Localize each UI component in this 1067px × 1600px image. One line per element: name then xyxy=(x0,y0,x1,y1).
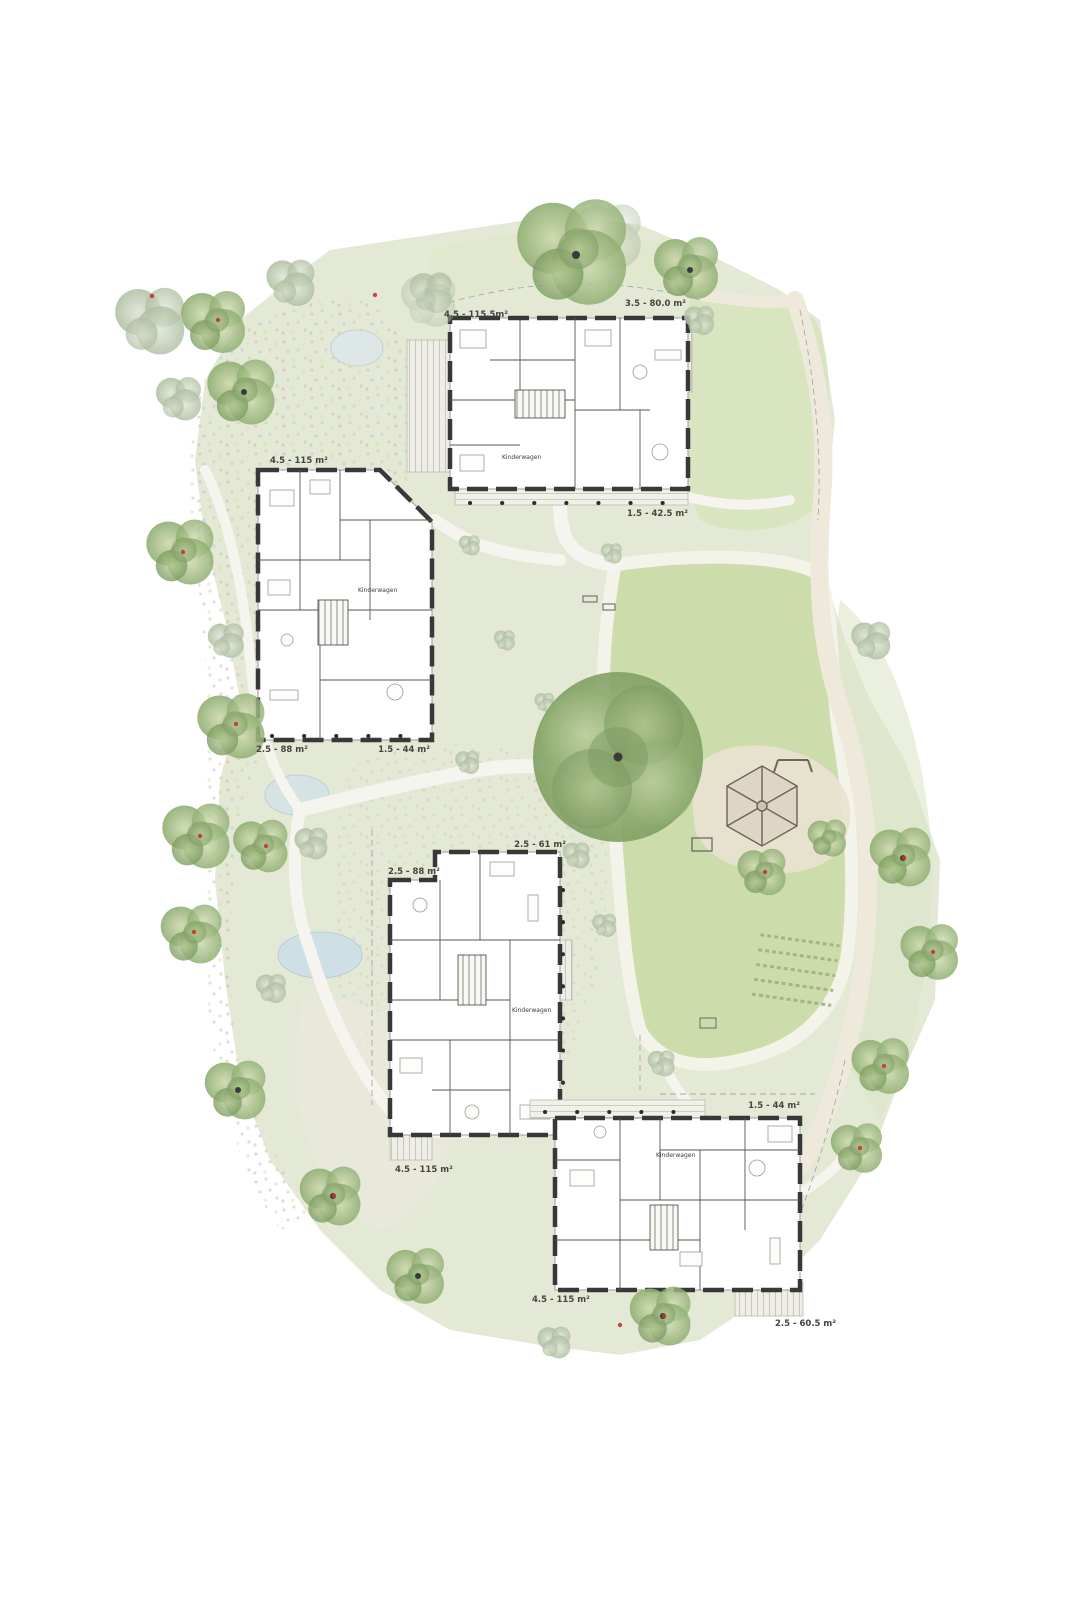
terrace xyxy=(407,340,453,472)
site-plan: 4.5 - 115.5m² 3.5 - 80.0 m² 1.5 - 42.5 m… xyxy=(0,0,1067,1600)
deck xyxy=(530,1100,705,1118)
room-label-center: Kinderwagen xyxy=(512,1007,551,1014)
label-north-top-left: 4.5 - 115.5m² xyxy=(444,310,508,320)
label-west-bottom-right: 1.5 - 44 m² xyxy=(378,745,430,755)
stair xyxy=(458,955,486,1005)
label-north-top-right: 3.5 - 80.0 m² xyxy=(625,299,686,309)
label-southeast-top-right: 1.5 - 44 m² xyxy=(748,1101,800,1111)
deck xyxy=(455,489,688,505)
label-southeast-bottom-right: 2.5 - 60.5 m² xyxy=(775,1319,836,1329)
room-label-southeast: Kinderwagen xyxy=(656,1152,695,1159)
stair xyxy=(515,390,565,418)
label-west-top-left: 4.5 - 115 m² xyxy=(270,456,328,466)
room-label-north: Kinderwagen xyxy=(502,454,541,461)
label-center-top-right: 2.5 - 61 m² xyxy=(514,840,566,850)
building-southeast-floorplan xyxy=(530,1100,803,1316)
building-north-floorplan xyxy=(407,318,692,505)
label-center-top-left: 2.5 - 88 m² xyxy=(388,867,440,877)
building-west-floorplan xyxy=(258,470,432,740)
stair xyxy=(318,600,348,645)
room-label-west: Kinderwagen xyxy=(358,587,397,594)
label-west-bottom-left: 2.5 - 88 m² xyxy=(256,745,308,755)
stair xyxy=(650,1205,678,1250)
pond-upper xyxy=(331,330,383,366)
label-north-bottom-right: 1.5 - 42.5 m² xyxy=(627,509,688,519)
label-center-bottom-left: 4.5 - 115 m² xyxy=(395,1165,453,1175)
site-plan-page: 4.5 - 115.5m² 3.5 - 80.0 m² 1.5 - 42.5 m… xyxy=(0,0,1067,1600)
label-southeast-bottom-left: 4.5 - 115 m² xyxy=(532,1295,590,1305)
